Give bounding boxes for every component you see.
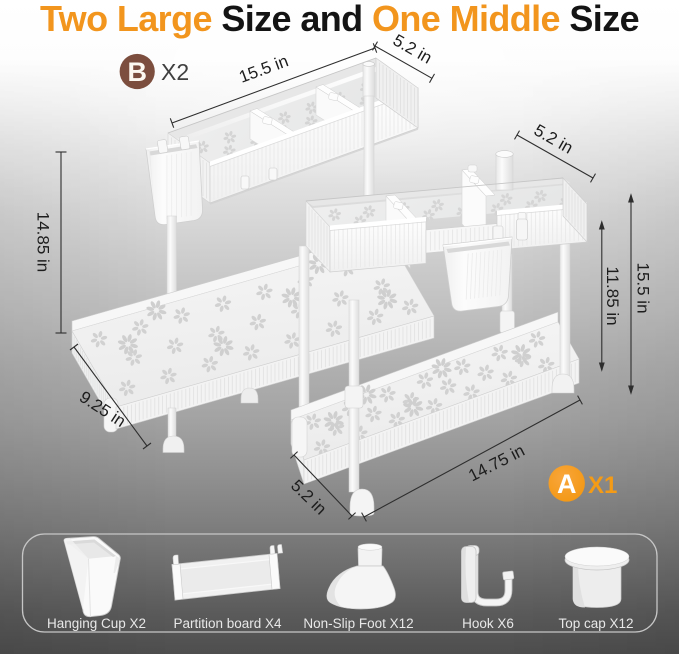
svg-text:A: A: [557, 469, 577, 499]
svg-text:15.5 in: 15.5 in: [236, 51, 290, 87]
svg-text:Non-Slip Foot X12: Non-Slip Foot X12: [303, 616, 413, 631]
svg-text:Top cap X12: Top cap X12: [558, 616, 633, 631]
svg-text:11.85 in: 11.85 in: [603, 266, 622, 325]
svg-text:14.75 in: 14.75 in: [465, 441, 528, 485]
svg-text:Two Large Size and One Middle: Two Large Size and One Middle Size: [40, 0, 639, 39]
svg-text:5.2 in: 5.2 in: [531, 121, 577, 158]
svg-text:Hanging Cup X2: Hanging Cup X2: [47, 616, 146, 631]
svg-text:15.5 in: 15.5 in: [634, 262, 653, 313]
svg-text:Hook X6: Hook X6: [462, 616, 514, 631]
svg-text:Partition board X4: Partition board X4: [173, 616, 282, 631]
svg-text:X2: X2: [161, 59, 189, 85]
svg-text:X1: X1: [588, 472, 617, 499]
svg-text:B: B: [127, 57, 147, 87]
svg-text:14.85 in: 14.85 in: [34, 212, 53, 273]
